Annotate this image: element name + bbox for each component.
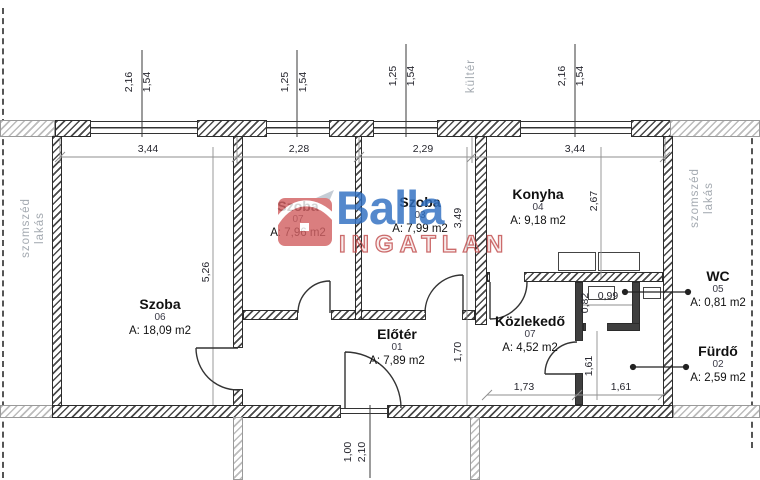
room-label-kozlekedo: Közlekedő 07 A: 4,52 m2 bbox=[478, 313, 582, 355]
dim-furdo-width: 1,61 bbox=[611, 381, 631, 393]
dim-window3-a: 1,25 bbox=[387, 66, 399, 86]
room-area: A: 18,09 m2 bbox=[108, 324, 212, 338]
dim-top-szoba07-width: 2,28 bbox=[289, 143, 309, 155]
dim-window3-b: 1,54 bbox=[405, 66, 417, 86]
neighbor-label-right-line1: szomszéd bbox=[688, 168, 702, 228]
room-name: Fürdő bbox=[678, 343, 758, 359]
neighbor-label-left: szomszéd lakás bbox=[19, 198, 47, 258]
door-arc-szoba03 bbox=[425, 275, 463, 313]
room-name: Közlekedő bbox=[478, 313, 582, 329]
neighbor-label-right: szomszéd lakás bbox=[688, 168, 716, 228]
dim-top-szoba03-width: 2,29 bbox=[413, 143, 433, 155]
watermark-house-icon bbox=[276, 188, 336, 248]
room-label-szoba06: Szoba 06 A: 18,09 m2 bbox=[108, 296, 212, 338]
neighbor-label-right-line2: lakás bbox=[702, 168, 716, 228]
room-area: A: 7,89 m2 bbox=[352, 354, 442, 368]
leader-dot-furdo-1 bbox=[631, 365, 636, 370]
dim-window2-b: 1,54 bbox=[297, 72, 309, 92]
room-label-konyha: Konyha 04 A: 9,18 m2 bbox=[494, 186, 582, 228]
dim-entrance-width: 1,00 bbox=[342, 442, 354, 462]
dim-window1-b: 1,54 bbox=[141, 72, 153, 92]
room-number: 07 bbox=[478, 329, 582, 341]
dim-wc-width: 0,99 bbox=[598, 290, 618, 302]
dim-top-szoba06-width: 3,44 bbox=[138, 143, 158, 155]
room-area: A: 0,81 m2 bbox=[678, 296, 758, 310]
door-arc-szoba07 bbox=[298, 281, 330, 313]
dim-top-konyha-width: 3,44 bbox=[565, 143, 585, 155]
dim-konyha-height: 2,67 bbox=[588, 191, 600, 211]
room-area: A: 2,59 m2 bbox=[678, 371, 758, 385]
floor-plan: szomszéd lakás szomszéd lakás kültér Szo… bbox=[0, 0, 760, 480]
dim-furdo-height: 1,61 bbox=[583, 356, 595, 376]
room-label-wc: WC 05 A: 0,81 m2 bbox=[678, 268, 758, 310]
dim-window2-a: 1,25 bbox=[279, 72, 291, 92]
room-name: WC bbox=[678, 268, 758, 284]
door-arc-szoba06 bbox=[196, 348, 238, 390]
dim-kozlekedo-width: 1,73 bbox=[514, 381, 534, 393]
room-number: 05 bbox=[678, 284, 758, 296]
room-name: Előtér bbox=[352, 326, 442, 342]
room-area: A: 9,18 m2 bbox=[494, 214, 582, 228]
watermark-sub-text: INGATLAN bbox=[339, 231, 509, 259]
room-name: Konyha bbox=[494, 186, 582, 202]
watermark-logo: Balla INGATLAN bbox=[276, 186, 486, 266]
room-number: 02 bbox=[678, 359, 758, 371]
room-number: 06 bbox=[108, 312, 212, 324]
room-number: 04 bbox=[494, 202, 582, 214]
neighbor-label-left-line1: szomszéd bbox=[19, 198, 33, 258]
room-label-furdo: Fürdő 02 A: 2,59 m2 bbox=[678, 343, 758, 385]
dim-window4-a: 2,16 bbox=[556, 66, 568, 86]
dim-window4-b: 1,54 bbox=[574, 66, 586, 86]
neighbor-label-left-line2: lakás bbox=[33, 198, 47, 258]
room-label-eloter: Előtér 01 A: 7,89 m2 bbox=[352, 326, 442, 368]
room-area: A: 4,52 m2 bbox=[478, 341, 582, 355]
outdoor-label: kültér bbox=[464, 59, 478, 93]
room-name: Szoba bbox=[108, 296, 212, 312]
dim-eloter-height: 1,70 bbox=[452, 342, 464, 362]
leader-dot-wc-1 bbox=[623, 290, 628, 295]
watermark-brand-text: Balla bbox=[336, 180, 443, 235]
dim-szoba06-height: 5,26 bbox=[200, 262, 212, 282]
room-number: 01 bbox=[352, 342, 442, 354]
dim-entrance-height: 2,10 bbox=[356, 442, 368, 462]
dim-wc-height: 0,82 bbox=[579, 293, 591, 313]
dim-window1-a: 2,16 bbox=[123, 72, 135, 92]
